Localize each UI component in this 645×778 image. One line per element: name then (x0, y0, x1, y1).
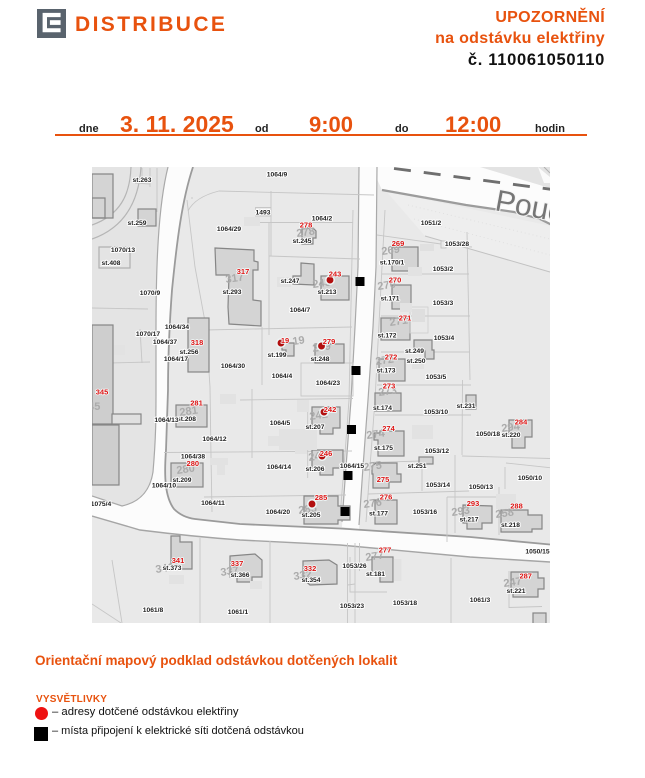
svg-text:st.175: st.175 (374, 445, 393, 452)
svg-text:277: 277 (379, 546, 392, 555)
svg-text:317: 317 (237, 267, 250, 276)
svg-text:1064/5: 1064/5 (270, 420, 291, 427)
svg-text:st.199: st.199 (268, 352, 287, 359)
svg-text:st.248: st.248 (311, 356, 330, 363)
svg-text:287: 287 (519, 572, 532, 581)
svg-text:1493: 1493 (256, 209, 271, 216)
svg-text:st.366: st.366 (231, 572, 250, 579)
svg-text:st.293: st.293 (223, 289, 242, 296)
svg-text:st.259: st.259 (128, 220, 147, 227)
svg-text:1064/23: 1064/23 (316, 380, 340, 387)
svg-text:284: 284 (515, 418, 528, 427)
svg-text:st.217: st.217 (460, 517, 479, 524)
svg-text:1061/3: 1061/3 (470, 597, 491, 604)
svg-text:1064/2: 1064/2 (312, 216, 333, 223)
svg-text:st.208: st.208 (177, 416, 196, 423)
svg-text:1064/14: 1064/14 (267, 464, 291, 471)
svg-text:1064/20: 1064/20 (266, 509, 290, 516)
svg-text:332: 332 (304, 564, 317, 573)
svg-text:1053/18: 1053/18 (393, 600, 417, 607)
svg-text:278: 278 (300, 221, 313, 230)
svg-text:276: 276 (380, 493, 393, 502)
svg-text:1053/4: 1053/4 (434, 335, 455, 342)
svg-text:st.172: st.172 (378, 333, 397, 340)
svg-text:272: 272 (385, 353, 398, 362)
svg-text:1050/18: 1050/18 (476, 431, 500, 438)
svg-text:st.354: st.354 (302, 577, 321, 584)
svg-text:293: 293 (467, 499, 480, 508)
svg-text:270: 270 (389, 276, 402, 285)
svg-text:269: 269 (392, 239, 405, 248)
svg-text:1070/13: 1070/13 (111, 247, 135, 254)
svg-text:st.263: st.263 (133, 177, 152, 184)
svg-text:1053/5: 1053/5 (426, 374, 447, 381)
svg-text:1050/13: 1050/13 (469, 484, 493, 491)
svg-text:1064/10: 1064/10 (152, 483, 176, 490)
svg-text:1064/11: 1064/11 (201, 500, 225, 507)
svg-text:st.220: st.220 (502, 432, 521, 439)
svg-text:280: 280 (187, 459, 200, 468)
svg-text:st.177: st.177 (369, 511, 388, 518)
svg-text:1070/9: 1070/9 (140, 290, 161, 297)
svg-text:345: 345 (96, 388, 109, 397)
svg-text:st.251: st.251 (408, 463, 427, 470)
svg-text:1053/28: 1053/28 (445, 241, 469, 248)
svg-text:246: 246 (320, 449, 333, 458)
svg-text:1061/8: 1061/8 (143, 607, 164, 614)
svg-text:st.207: st.207 (306, 424, 325, 431)
svg-text:274: 274 (382, 424, 395, 433)
svg-text:st.373: st.373 (163, 565, 182, 572)
svg-text:1050/15: 1050/15 (525, 549, 549, 556)
svg-text:281: 281 (190, 399, 203, 408)
svg-text:275: 275 (377, 475, 390, 484)
svg-text:1064/7: 1064/7 (290, 307, 311, 314)
svg-text:st.245: st.245 (293, 238, 312, 245)
svg-text:st.250: st.250 (407, 358, 426, 365)
svg-text:243: 243 (329, 270, 342, 279)
svg-text:341: 341 (172, 556, 185, 565)
svg-text:1053/10: 1053/10 (424, 409, 448, 416)
svg-text:1053/26: 1053/26 (342, 563, 366, 570)
svg-text:st.408: st.408 (102, 260, 121, 267)
svg-text:st.213: st.213 (318, 289, 337, 296)
svg-text:1053/16: 1053/16 (413, 509, 437, 516)
svg-text:1051/2: 1051/2 (421, 220, 442, 227)
svg-text:19: 19 (292, 334, 306, 348)
svg-text:st.173: st.173 (377, 368, 396, 375)
svg-text:1053/3: 1053/3 (433, 300, 454, 307)
svg-text:1064/12: 1064/12 (202, 436, 226, 443)
svg-text:1070/17: 1070/17 (136, 331, 160, 338)
svg-text:st.249: st.249 (405, 348, 424, 355)
svg-text:st.231: st.231 (457, 403, 476, 410)
svg-text:1064/29: 1064/29 (217, 226, 241, 233)
svg-text:1064/13: 1064/13 (154, 417, 178, 424)
svg-text:1064/30: 1064/30 (221, 363, 245, 370)
svg-text:st.205: st.205 (302, 512, 321, 519)
svg-text:275: 275 (363, 460, 383, 474)
svg-text:273: 273 (383, 382, 396, 391)
svg-text:1061/1: 1061/1 (228, 609, 249, 616)
svg-text:st.221: st.221 (507, 588, 526, 595)
svg-text:271: 271 (399, 314, 412, 323)
svg-text:1064/15: 1064/15 (340, 463, 364, 470)
svg-text:1053/23: 1053/23 (340, 603, 364, 610)
svg-text:1053/14: 1053/14 (426, 482, 450, 489)
svg-text:1064/37: 1064/37 (153, 339, 177, 346)
svg-text:st.170/1: st.170/1 (380, 260, 405, 267)
svg-text:1064/34: 1064/34 (165, 324, 189, 331)
svg-text:19: 19 (281, 336, 289, 345)
svg-text:st.206: st.206 (306, 466, 325, 473)
svg-text:1053/2: 1053/2 (433, 266, 454, 273)
svg-text:1064/17: 1064/17 (164, 356, 188, 363)
svg-text:318: 318 (191, 338, 204, 347)
svg-text:st.171: st.171 (381, 296, 400, 303)
svg-text:1050/10: 1050/10 (518, 475, 542, 482)
svg-text:1064/9: 1064/9 (267, 172, 288, 179)
svg-text:st.247: st.247 (281, 278, 300, 285)
svg-text:st.256: st.256 (180, 349, 199, 356)
svg-text:1075/4: 1075/4 (92, 501, 112, 508)
svg-text:242: 242 (324, 405, 337, 414)
svg-text:st.218: st.218 (501, 522, 520, 529)
svg-text:st.181: st.181 (366, 571, 385, 578)
svg-text:345: 345 (92, 401, 100, 413)
svg-text:1064/4: 1064/4 (272, 373, 293, 380)
svg-text:288: 288 (510, 502, 523, 511)
svg-text:285: 285 (315, 493, 328, 502)
svg-text:st.174: st.174 (373, 405, 392, 412)
svg-text:337: 337 (231, 559, 244, 568)
svg-text:279: 279 (323, 337, 336, 346)
svg-text:1053/12: 1053/12 (425, 448, 449, 455)
